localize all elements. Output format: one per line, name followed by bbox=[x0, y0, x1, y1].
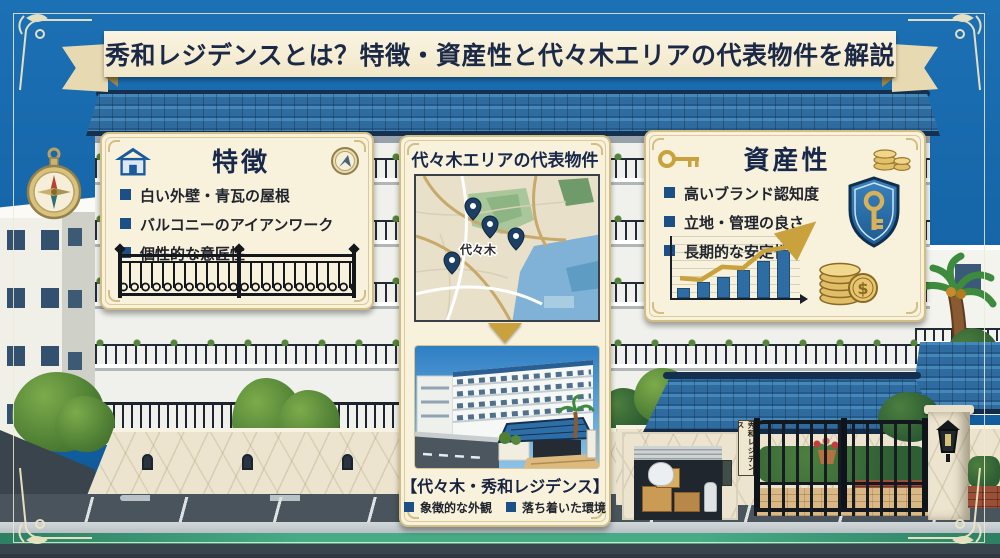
lantern-icon bbox=[934, 418, 962, 464]
gate-name-sign: 秀和レジデンス bbox=[738, 420, 754, 476]
coin-stack-icon: $ bbox=[818, 252, 880, 306]
tree bbox=[55, 396, 115, 452]
shield-icon bbox=[844, 176, 904, 250]
building-illustration bbox=[415, 346, 600, 469]
property-heading: 代々木エリアの代表物件 bbox=[401, 146, 609, 171]
feature-item: 白い外壁・青瓦の屋根 bbox=[118, 185, 362, 206]
asset-item: 高いブランド認知度 bbox=[662, 183, 832, 204]
property-photo bbox=[414, 345, 600, 469]
ironwork-railing-illustration bbox=[118, 248, 356, 302]
white-sack bbox=[648, 462, 674, 486]
wall-vent bbox=[142, 454, 153, 470]
chart-bar bbox=[717, 277, 730, 298]
road bbox=[0, 544, 1000, 558]
feature-item: バルコニーのアイアンワーク bbox=[118, 214, 362, 235]
compass-icon bbox=[24, 144, 84, 232]
dollar-symbol: $ bbox=[857, 279, 868, 298]
chart-bar bbox=[757, 261, 770, 298]
property-item: 落ち着いた環境 bbox=[506, 499, 606, 516]
gate-roof-ridge bbox=[663, 372, 921, 379]
iron-gate bbox=[754, 420, 928, 516]
garage-opening bbox=[634, 446, 722, 520]
title-banner: 秀和レジデンスとは？特徴・資産性と代々木エリアの代表物件を解説 bbox=[104, 31, 896, 77]
corner-flourish-icon bbox=[906, 466, 986, 546]
page-title: 秀和レジデンスとは？特徴・資産性と代々木エリアの代表物件を解説 bbox=[105, 36, 895, 72]
chart-bar bbox=[777, 250, 790, 298]
gate-post bbox=[841, 418, 847, 510]
cardboard-box bbox=[642, 486, 672, 512]
asset-item: 立地・管理の良さ bbox=[662, 212, 832, 233]
property-panel: 代々木エリアの代表物件 bbox=[399, 135, 611, 527]
property-bullet-row: 象徴的な外観 落ち着いた環境 bbox=[401, 499, 609, 516]
features-heading: 特徴 bbox=[212, 142, 270, 179]
wall-vent bbox=[242, 454, 253, 470]
asset-heading: 資産性 bbox=[743, 140, 830, 177]
asset-panel: 資産性 高いブランド認知度 立地・管理の良さ 長期的な安定性 bbox=[644, 130, 926, 322]
water-jug bbox=[704, 482, 717, 512]
bar-chart-bars bbox=[670, 236, 800, 300]
map-illustration: 代々木 bbox=[416, 176, 600, 322]
key-icon bbox=[658, 147, 702, 171]
street-green-stripe bbox=[0, 533, 1000, 544]
yoyogi-map: 代々木 bbox=[414, 174, 600, 322]
wall-vent bbox=[342, 454, 353, 470]
cardboard-box bbox=[674, 492, 700, 512]
property-caption: 【代々木・秀和レジデンス】 bbox=[401, 473, 609, 497]
infographic-scene: 秀和レジデンス bbox=[0, 0, 1000, 558]
garage bbox=[622, 432, 738, 520]
down-arrow-icon bbox=[488, 323, 522, 343]
small-plaque bbox=[722, 460, 732, 486]
chart-bar bbox=[697, 282, 710, 298]
chart-bar bbox=[677, 288, 690, 298]
map-label: 代々木 bbox=[459, 242, 497, 257]
garage-shutter bbox=[634, 446, 722, 460]
property-item: 象徴的な外観 bbox=[404, 499, 492, 516]
corner-flourish-icon bbox=[14, 466, 94, 546]
gate-post bbox=[754, 418, 760, 510]
features-panel: 特徴 白い外壁・青瓦の屋根 バルコニーのアイアンワーク 個性的な意匠性 bbox=[100, 132, 374, 310]
chart-bar bbox=[737, 270, 750, 298]
